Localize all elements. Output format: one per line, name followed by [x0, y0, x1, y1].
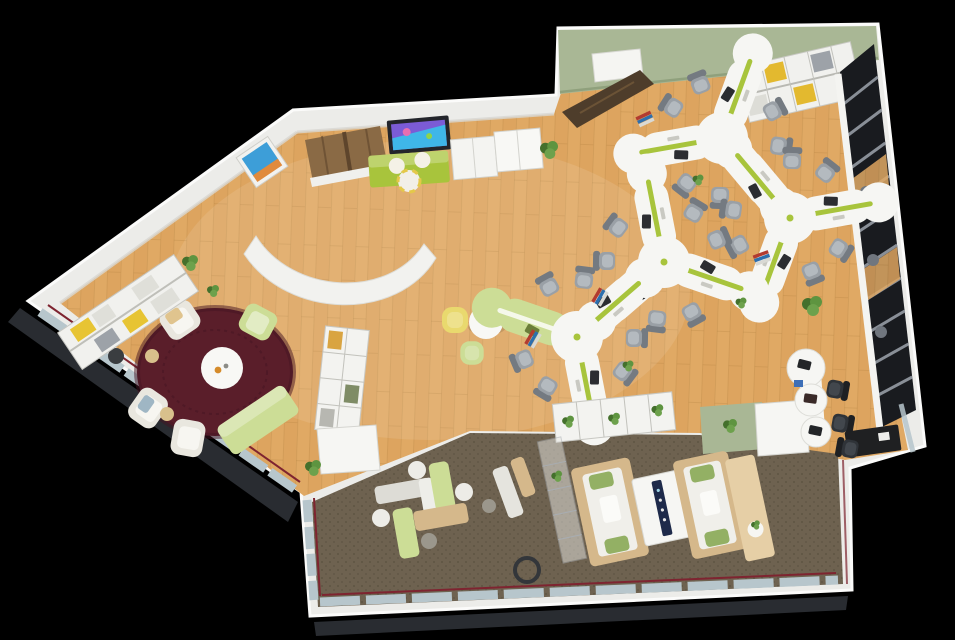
round-coffee-table: [201, 347, 243, 389]
table-decor: [215, 367, 222, 374]
floorplan-svg: [0, 0, 955, 640]
armchair: [169, 417, 207, 458]
pouf-white: [455, 483, 473, 501]
side-stool: [160, 407, 174, 421]
paper: [878, 432, 890, 441]
tv: [387, 115, 452, 154]
partition-box: [317, 425, 380, 474]
office-chair: [593, 251, 615, 271]
shelf-box: [344, 384, 360, 403]
pouf-white: [408, 461, 426, 479]
corridor-seat: [875, 326, 887, 338]
shelf-box: [327, 330, 343, 349]
pouf-yellow: [442, 307, 468, 333]
round-stool: [398, 170, 420, 192]
office-chair: [782, 147, 803, 170]
table-decor: [224, 364, 229, 369]
side-stool: [145, 349, 159, 363]
pouf-gray: [482, 499, 496, 513]
pouf-gray: [421, 533, 437, 549]
laptop: [803, 393, 817, 404]
corridor-seat: [867, 254, 879, 266]
blue-folder: [794, 380, 803, 387]
floorplan-render: [0, 0, 955, 640]
pouf-white: [372, 509, 390, 527]
pouf-green: [460, 341, 483, 364]
office-chair: [626, 328, 648, 348]
shelf-box: [319, 408, 335, 427]
